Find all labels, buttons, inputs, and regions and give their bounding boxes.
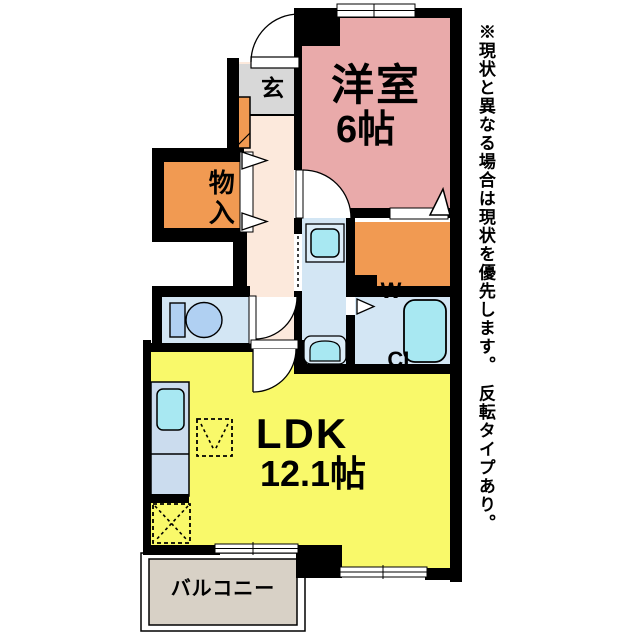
- wall-wcl-west: [346, 216, 355, 277]
- bathroom-door-gap: [346, 297, 355, 315]
- wcl-label-line2: CL: [355, 348, 449, 371]
- wall-toilet-west: [152, 286, 162, 352]
- western-room-size: 6帖: [336, 111, 395, 151]
- wall-ldk-south-left: [143, 545, 220, 555]
- toilet-bowl: [186, 303, 222, 338]
- kitchen-counter-base: [151, 494, 189, 503]
- wall-entry-west: [227, 58, 239, 152]
- wall-bath-west: [346, 315, 355, 366]
- wall-ldk-south-right: [425, 568, 462, 580]
- floorplan-svg: [0, 0, 640, 640]
- disclaimer-note: ※現状と異なる場合は現状を優先します。 反転タイプあり。: [476, 23, 494, 623]
- wall-toilet-south: [143, 343, 253, 352]
- entrance-door-swing: [251, 14, 299, 62]
- western-room-name: 洋室: [331, 64, 421, 109]
- ldk-door-gap: [251, 340, 298, 349]
- entrance-door-leaf: [251, 57, 299, 68]
- wall-ldk-step: [296, 545, 342, 578]
- wall-washroom-west-top: [294, 216, 302, 235]
- westernroom-door-leaf: [296, 170, 303, 218]
- toilet-door-leaf: [249, 296, 256, 344]
- wash-basin-bowl: [310, 341, 340, 361]
- washing-machine: [311, 229, 339, 257]
- wall-ldk-west: [143, 340, 151, 555]
- ldk-size: 12.1帖: [227, 455, 399, 493]
- toilet-tank: [170, 303, 185, 337]
- kitchen-sink: [157, 389, 184, 430]
- wall-westernroom-west: [294, 8, 302, 170]
- storage-label: 物入: [206, 169, 233, 229]
- ldk-name: LDK: [232, 412, 372, 456]
- balcony-label: バルコニー: [149, 579, 297, 600]
- wall-storage-south: [152, 228, 244, 242]
- wall-storage-north: [152, 148, 244, 162]
- entrance-label: 玄: [261, 76, 284, 100]
- floorplan-canvas: 洋室 6帖 玄 物入 W— CL LDK 12.1帖 バルコニー ※現状と異なる…: [0, 0, 640, 640]
- wcl-label: W— CL: [355, 233, 449, 418]
- wall-storage-west: [152, 148, 164, 242]
- wall-toilet-north: [152, 286, 250, 297]
- wcl-label-line1: W—: [355, 279, 449, 302]
